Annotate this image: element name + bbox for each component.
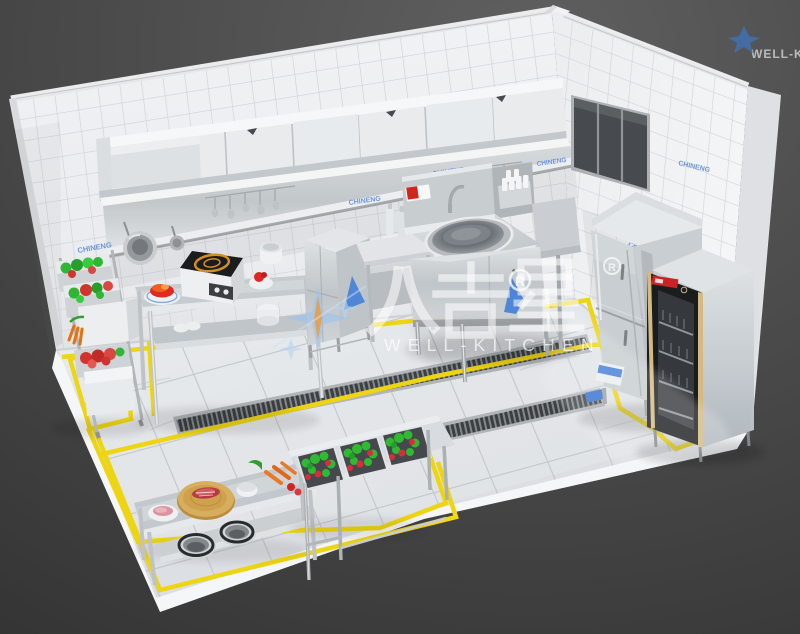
svg-text:R: R bbox=[515, 273, 525, 289]
svg-text:R: R bbox=[608, 262, 616, 274]
svg-text:WELL-KITC: WELL-KITC bbox=[751, 47, 800, 61]
svg-text:WELL-KITCHEN: WELL-KITCHEN bbox=[384, 335, 601, 355]
